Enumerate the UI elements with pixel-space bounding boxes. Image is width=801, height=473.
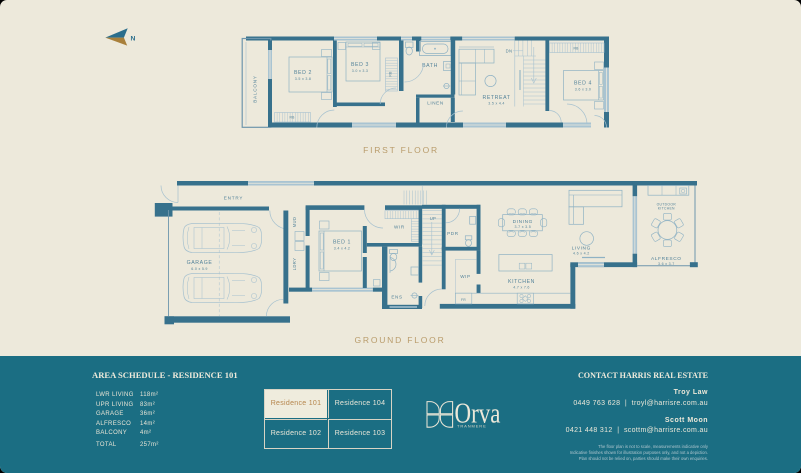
svg-text:BALCONY: BALCONY — [253, 75, 258, 103]
svg-text:RB: RB — [389, 71, 393, 77]
svg-text:KITCHEN: KITCHEN — [508, 279, 535, 285]
svg-text:RETREAT: RETREAT — [482, 95, 510, 101]
svg-text:3.4 x 4.2: 3.4 x 4.2 — [334, 246, 351, 250]
svg-text:3.0 x 3.3: 3.0 x 3.3 — [352, 69, 369, 73]
svg-text:BATH: BATH — [422, 63, 438, 69]
svg-text:ENS: ENS — [391, 294, 402, 299]
svg-text:6.0 x 5.9: 6.0 x 5.9 — [191, 267, 208, 271]
svg-text:BED 1: BED 1 — [333, 240, 351, 246]
svg-text:BED 4: BED 4 — [574, 81, 592, 87]
svg-text:3.5 x 4.4: 3.5 x 4.4 — [488, 102, 505, 106]
svg-text:3.6 x 3.0: 3.6 x 3.0 — [575, 87, 592, 91]
svg-text:ENTRY: ENTRY — [224, 196, 244, 201]
svg-text:3.7 x 3.5: 3.7 x 3.5 — [515, 225, 532, 229]
svg-text:TRANMERE: TRANMERE — [457, 424, 487, 429]
svg-text:DN: DN — [506, 49, 513, 54]
svg-text:3.5 x 3.8: 3.5 x 3.8 — [295, 77, 312, 81]
svg-text:4.7 x 7.6: 4.7 x 7.6 — [513, 286, 530, 290]
svg-text:FR: FR — [461, 298, 466, 302]
svg-text:LINEN: LINEN — [427, 101, 444, 106]
svg-text:N: N — [131, 35, 136, 42]
svg-text:BED 2: BED 2 — [294, 70, 312, 76]
svg-text:RB: RB — [573, 46, 579, 50]
svg-text:BED 3: BED 3 — [351, 62, 369, 68]
svg-text:4.6 x 4.2: 4.6 x 4.2 — [573, 251, 590, 255]
svg-text:GARAGE: GARAGE — [187, 260, 213, 266]
svg-text:KITCHEN: KITCHEN — [658, 207, 675, 211]
svg-text:LDRY: LDRY — [292, 258, 297, 271]
svg-text:RB: RB — [289, 116, 295, 120]
svg-text:MUD: MUD — [292, 217, 297, 228]
svg-text:PDR: PDR — [447, 231, 459, 236]
svg-text:UP: UP — [430, 216, 436, 221]
svg-text:WIR: WIR — [394, 225, 405, 230]
svg-text:WIP: WIP — [460, 274, 470, 279]
